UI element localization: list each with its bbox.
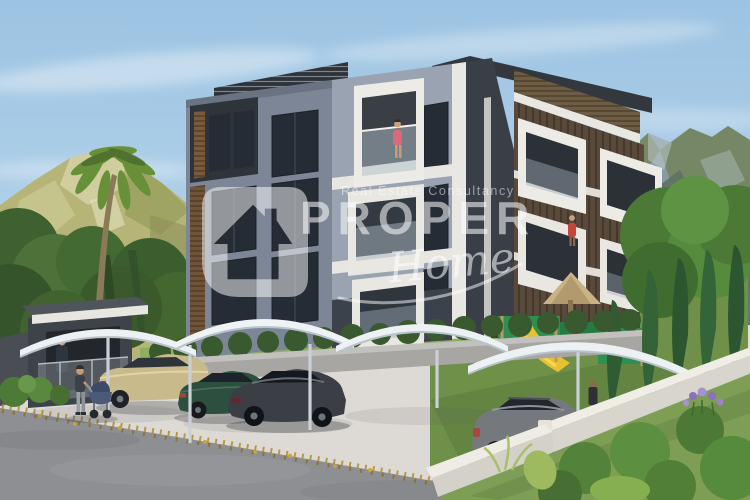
building-left-face [186,80,332,358]
render-scene [0,0,750,500]
balcony-stack-center [348,78,424,351]
architectural-render: Real Estate Consultancy PROPER Home [0,0,750,500]
apartment-building [186,56,662,358]
person-near-playground [589,381,598,405]
